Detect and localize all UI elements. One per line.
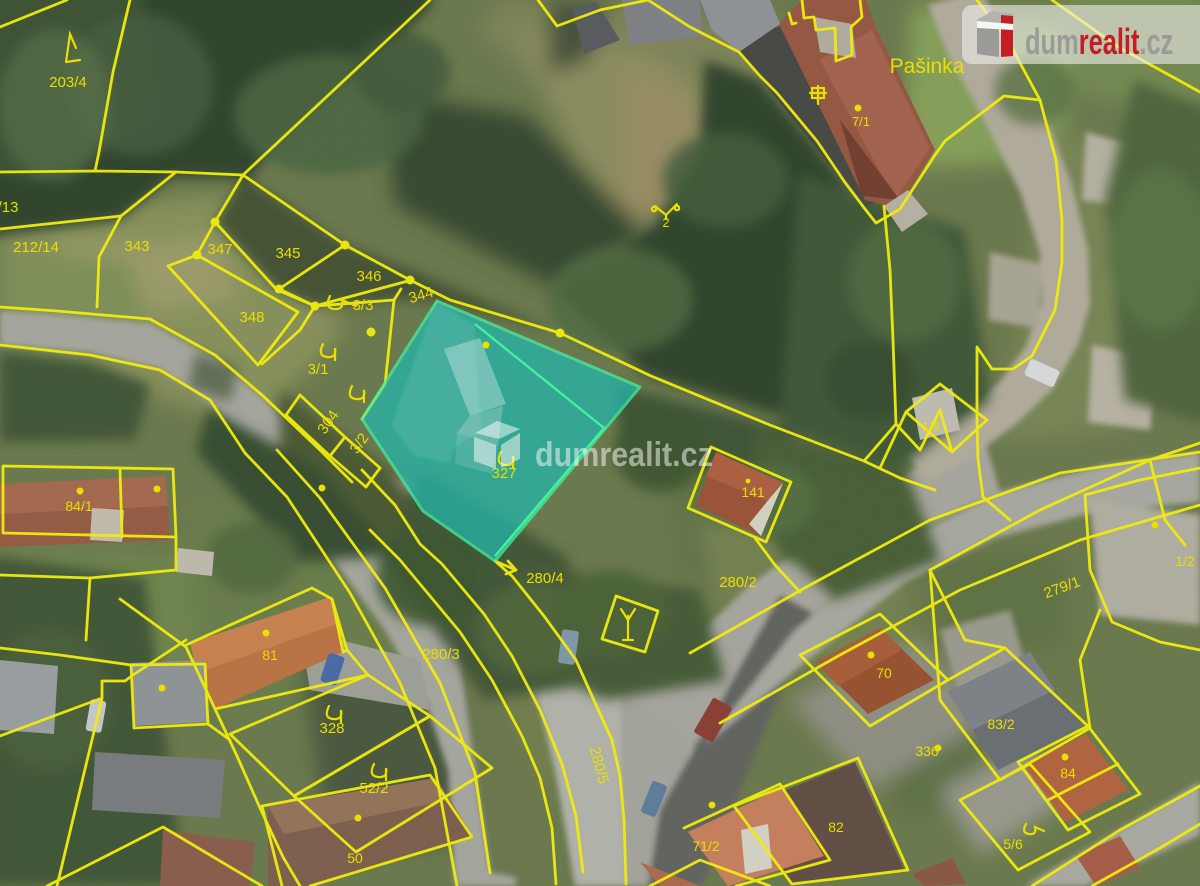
svg-text:212/14: 212/14 [13,239,59,256]
svg-text:81: 81 [262,647,278,663]
svg-text:1/4: 1/4 [922,419,940,434]
svg-text:dumrealit.cz: dumrealit.cz [535,435,713,473]
svg-text:347: 347 [207,241,232,258]
svg-text:dumrealit.cz: dumrealit.cz [1025,22,1173,62]
svg-text:336: 336 [915,743,939,759]
svg-text:346: 346 [356,268,381,285]
svg-text:203/4: 203/4 [49,74,87,91]
svg-text:70: 70 [876,665,892,681]
svg-text:Pašinka: Pašinka [890,55,965,78]
svg-text:280/3: 280/3 [422,646,460,663]
svg-text:52/2: 52/2 [359,780,388,797]
svg-text:84/1: 84/1 [65,498,92,514]
svg-text:280/2: 280/2 [719,574,757,591]
svg-text:50: 50 [347,850,363,866]
svg-text:/13: /13 [0,199,18,216]
svg-text:141: 141 [741,484,765,500]
svg-text:71/2: 71/2 [692,838,719,854]
svg-text:83/2: 83/2 [987,716,1014,732]
svg-text:343: 343 [124,238,149,255]
svg-text:84: 84 [1060,765,1076,781]
svg-text:5/6: 5/6 [1003,836,1023,852]
svg-text:280/4: 280/4 [526,570,564,587]
svg-text:7/1: 7/1 [852,114,870,129]
svg-text:345: 345 [275,245,300,262]
svg-text:82: 82 [828,819,844,835]
svg-text:1/2: 1/2 [1175,553,1195,569]
svg-text:3/1: 3/1 [308,361,329,378]
svg-text:348: 348 [239,309,264,326]
